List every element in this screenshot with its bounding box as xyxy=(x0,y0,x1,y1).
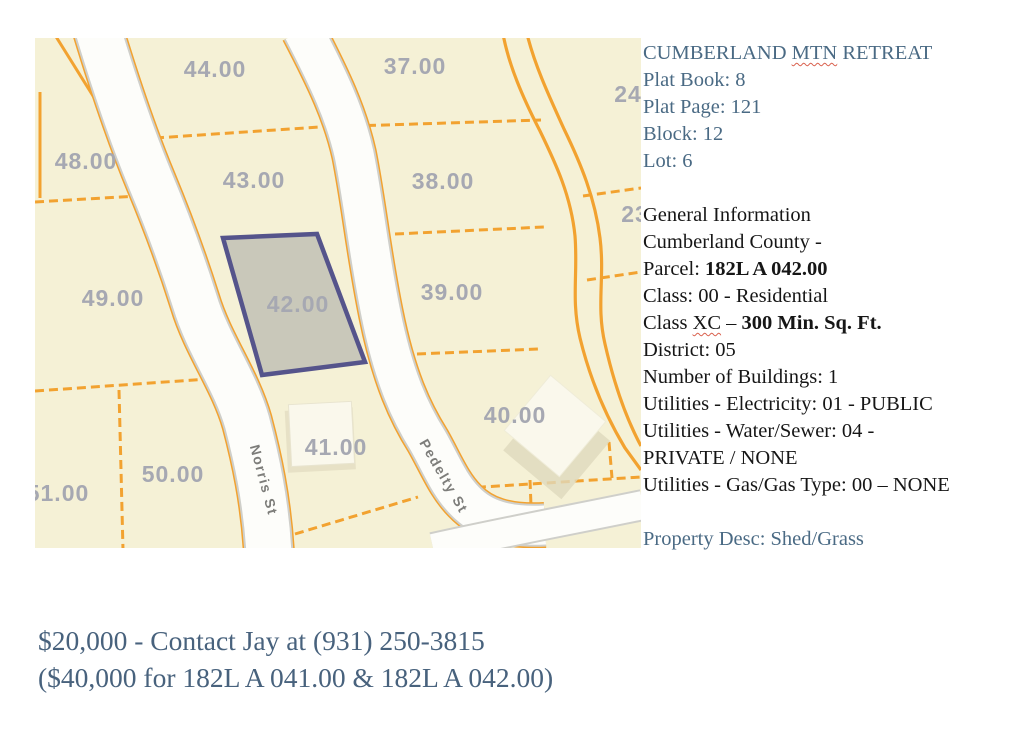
price-line: $20,000 - Contact Jay at (931) 250-3815 xyxy=(38,622,553,659)
info-text: Plat Book: 8 xyxy=(643,69,746,91)
parcel-number-label: 49.00 xyxy=(82,285,145,311)
parcel-number-label: 38.00 xyxy=(412,168,475,194)
plat-map-svg: 44.0037.002448.0043.0038.002349.0042.003… xyxy=(35,38,641,548)
parcel-number-label: 37.00 xyxy=(384,53,447,79)
info-text: Utilities - Gas/Gas Type: 00 – NONE xyxy=(643,474,950,496)
info-line: District: 05 xyxy=(643,337,1021,364)
info-blank-line xyxy=(643,499,1021,526)
plat-map: 44.0037.002448.0043.0038.002349.0042.003… xyxy=(35,38,641,548)
info-text: Number of Buildings: 1 xyxy=(643,366,838,388)
info-text: 182L A 042.00 xyxy=(705,258,827,280)
parcel-number-label: 41.00 xyxy=(305,434,368,460)
info-text: General Information xyxy=(643,204,811,226)
info-line: Utilities - Gas/Gas Type: 00 – NONE xyxy=(643,472,1021,499)
info-line: General Information xyxy=(643,202,1021,229)
parcel-number-label: 50.00 xyxy=(142,461,205,487)
bundle-price-line: ($40,000 for 182L A 041.00 & 182L A 042.… xyxy=(38,659,553,696)
info-text: Utilities - Electricity: 01 - PUBLIC xyxy=(643,393,933,415)
info-text: Class: 00 - Residential xyxy=(643,285,828,307)
info-text: 300 Min. Sq. Ft. xyxy=(742,312,882,334)
info-line: Class: 00 - Residential xyxy=(643,283,1021,310)
info-text: Block: 12 xyxy=(643,123,723,145)
price-contact: $20,000 - Contact Jay at (931) 250-3815 … xyxy=(38,622,553,696)
info-text: Cumberland County - xyxy=(643,231,822,253)
info-text: Plat Page: 121 xyxy=(643,96,761,118)
parcel-number-label: 39.00 xyxy=(421,279,484,305)
info-text: XC xyxy=(693,312,721,334)
info-line: Utilities - Electricity: 01 - PUBLIC xyxy=(643,391,1021,418)
info-line: Utilities - Water/Sewer: 04 - xyxy=(643,418,1021,445)
info-line: Cumberland County - xyxy=(643,229,1021,256)
info-line: Class XC – 300 Min. Sq. Ft. xyxy=(643,310,1021,337)
info-text: Lot: 6 xyxy=(643,150,693,172)
info-line: Number of Buildings: 1 xyxy=(643,364,1021,391)
info-line: Block: 12 xyxy=(643,121,1021,148)
info-text: MTN xyxy=(792,42,838,64)
info-line: Plat Page: 121 xyxy=(643,94,1021,121)
info-text: PRIVATE / NONE xyxy=(643,447,798,469)
parcel-number-label: 40.00 xyxy=(484,402,547,428)
info-line: Plat Book: 8 xyxy=(643,67,1021,94)
parcel-number-label: 44.00 xyxy=(184,56,247,82)
parcel-number-label: 42.00 xyxy=(267,291,330,317)
info-text: RETREAT xyxy=(837,42,932,64)
parcel-number-label: 24 xyxy=(614,81,641,107)
info-line: Lot: 6 xyxy=(643,148,1021,175)
info-text: CUMBERLAND xyxy=(643,42,792,64)
info-line: Property Desc: Shed/Grass xyxy=(643,526,1021,553)
info-line: CUMBERLAND MTN RETREAT xyxy=(643,40,1021,67)
parcel-number-label: 43.00 xyxy=(223,167,286,193)
info-text: Property Desc: Shed/Grass xyxy=(643,528,864,550)
parcel-number-label: 23 xyxy=(621,201,641,227)
info-text: Parcel: xyxy=(643,258,705,280)
info-blank-line xyxy=(643,175,1021,202)
parcel-number-label: 48.00 xyxy=(55,148,118,174)
info-text: Class xyxy=(643,312,693,334)
property-info-panel: CUMBERLAND MTN RETREATPlat Book: 8Plat P… xyxy=(643,40,1021,553)
info-text: Utilities - Water/Sewer: 04 - xyxy=(643,420,874,442)
parcel-number-label: 51.00 xyxy=(35,480,89,506)
info-line: Parcel: 182L A 042.00 xyxy=(643,256,1021,283)
info-text: – xyxy=(721,312,742,334)
info-line: PRIVATE / NONE xyxy=(643,445,1021,472)
info-text: District: 05 xyxy=(643,339,736,361)
